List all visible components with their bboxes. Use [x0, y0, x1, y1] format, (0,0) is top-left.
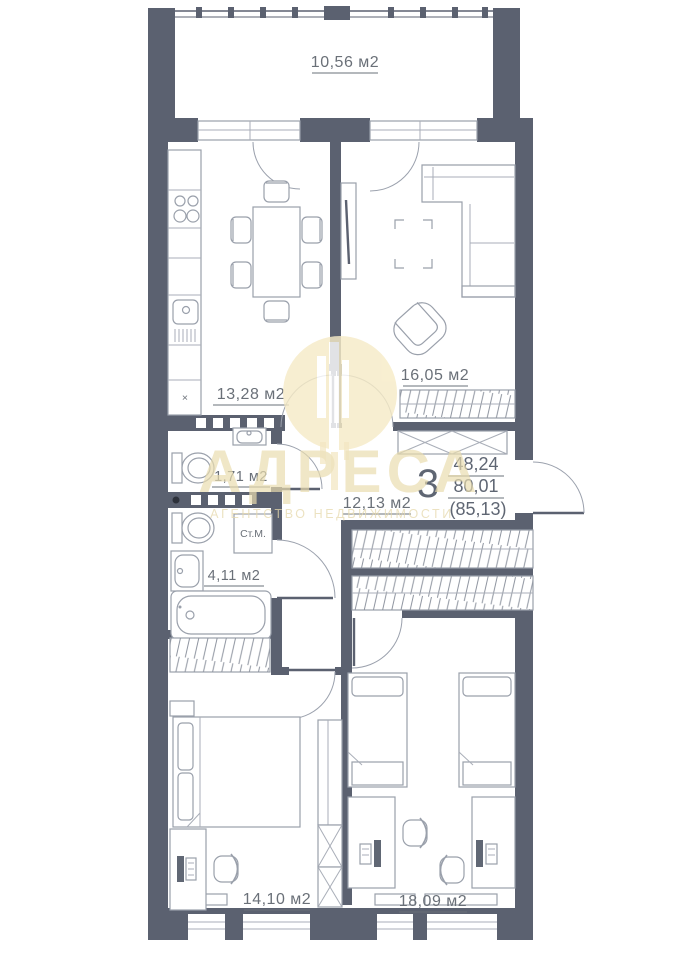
bedroom1-cabinet [318, 720, 342, 907]
bathroom-door [277, 540, 335, 598]
bedroom2-door [352, 618, 402, 668]
bedroom-2: 18,09 м2 [348, 673, 515, 912]
bedroom1-area-label: 14,10 м2 [243, 891, 311, 908]
desk-right [472, 797, 515, 888]
desk-left [348, 797, 395, 888]
bedroom1-door [288, 670, 335, 719]
desk-chair [214, 854, 238, 884]
kitchen-area-label: 13,28 м2 [217, 386, 285, 403]
single-bed-left [348, 673, 407, 787]
bathroom-area-label: 4,11 м2 [208, 568, 261, 584]
balcony-window-living [370, 121, 477, 191]
balcony: 10,56 м2 [311, 54, 379, 73]
balcony-window-kitchen [198, 121, 300, 189]
toilet-icon [172, 513, 214, 543]
balcony-area-label: 10,56 м2 [311, 54, 379, 71]
washing-machine-label: Ст.М. [240, 528, 266, 540]
bathroom-sink-icon [171, 551, 203, 591]
hallway-closet-row2 [352, 576, 533, 610]
floorplan-drawing: × 13,28 м2 [0, 0, 679, 960]
armchair [388, 297, 452, 360]
watermark-circle-icon [283, 336, 397, 450]
coffee-table [395, 220, 432, 268]
desk-chair [440, 855, 464, 885]
bathtub-icon [171, 591, 271, 639]
floorplan-page: × 13,28 м2 [0, 0, 679, 960]
desk-chair [403, 818, 427, 848]
watermark-title: АДРЕСА [198, 438, 482, 505]
kitchen-counter [168, 150, 201, 415]
single-bed-right [459, 673, 515, 787]
nightstand [170, 701, 194, 716]
watermark-subtitle: АГЕНТСТВО НЕДВИЖИМОСТИ [210, 507, 454, 521]
living-area-label: 16,05 м2 [401, 367, 469, 384]
kitchen-niche-mark: × [182, 392, 188, 404]
bedroom2-area-label: 18,09 м2 [399, 893, 467, 910]
double-bed [173, 717, 300, 827]
desk [170, 829, 206, 910]
living-wardrobe [400, 390, 515, 418]
hallway-closet-row1 [352, 530, 533, 568]
bedroom1-wardrobe [170, 638, 270, 672]
bedroom-1: 14,10 м2 [170, 638, 342, 910]
bathroom: Ст.М. 4,11 м2 [171, 513, 272, 639]
entrance-door [533, 462, 584, 513]
balcony-door-swing [370, 142, 419, 191]
dining-table [253, 207, 300, 297]
corner-sofa [422, 165, 515, 297]
balcony-glazing [175, 6, 493, 20]
tv-unit [341, 183, 356, 279]
